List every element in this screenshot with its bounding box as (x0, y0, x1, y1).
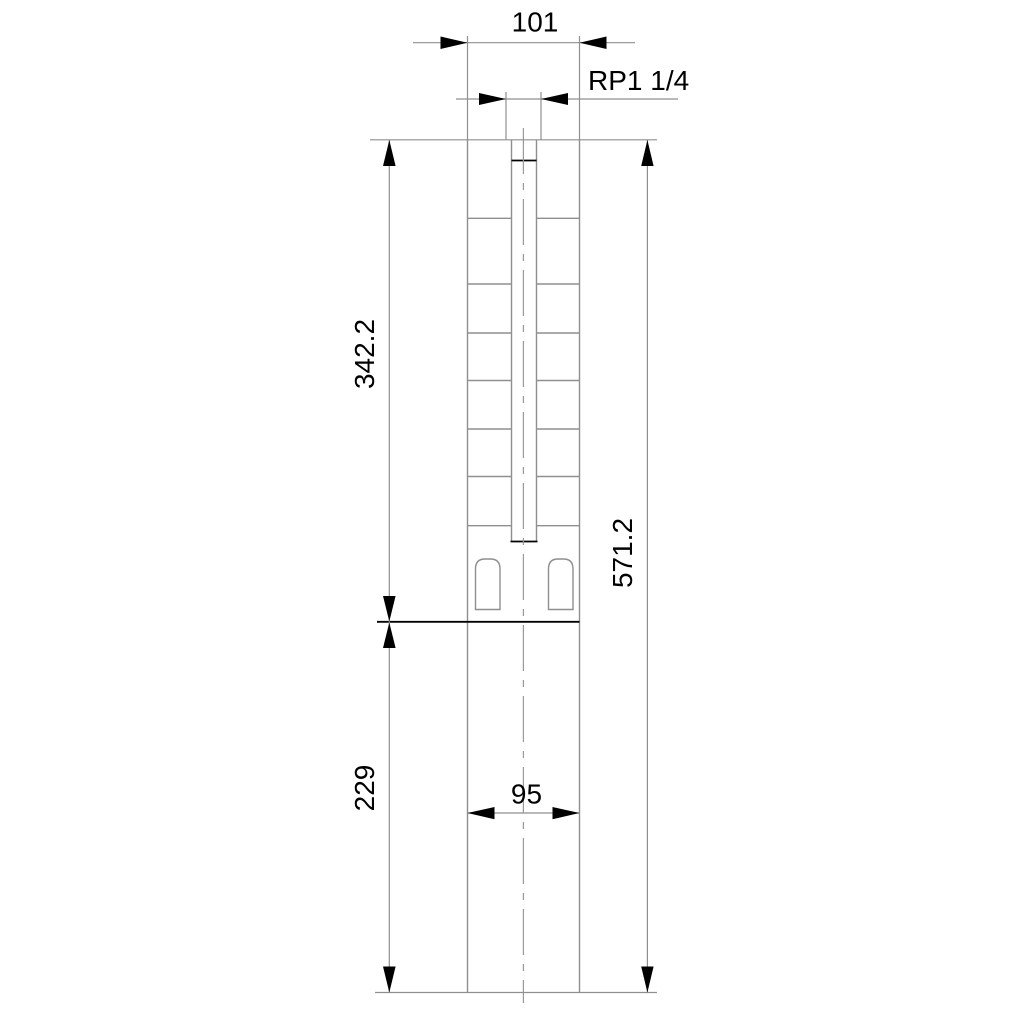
arrow-229-top (383, 623, 396, 649)
suction-slot-left (476, 559, 501, 610)
arrow-95-left (468, 807, 495, 819)
dimension-arrows (383, 37, 654, 993)
arrow-101-right (580, 37, 607, 50)
arrow-thread-right (541, 93, 568, 105)
dim-label-motor-length: 229 (349, 765, 380, 812)
arrow-95-right (553, 807, 580, 819)
drawing-canvas: 101 RP1 1/4 342.2 571.2 229 95 (0, 0, 1024, 1024)
dim-label-thread-size: RP1 1/4 (588, 65, 689, 96)
arrow-342-bottom (383, 596, 396, 622)
dim-label-motor-diameter: 95 (511, 779, 542, 810)
arrow-229-bottom (383, 967, 396, 993)
dim-label-outlet-width: 101 (512, 7, 559, 38)
suction-slot-right (549, 559, 574, 610)
arrow-101-left (441, 37, 468, 50)
dimension-labels: 101 RP1 1/4 342.2 571.2 229 95 (349, 7, 689, 812)
dim-label-pump-length: 342.2 (349, 319, 380, 389)
black-edges (377, 161, 580, 622)
arrow-thread-left (479, 93, 506, 105)
arrow-571-bottom (641, 967, 653, 993)
technical-drawing: 101 RP1 1/4 342.2 571.2 229 95 (0, 0, 1024, 1024)
arrow-571-top (641, 140, 653, 166)
arrow-342-top (383, 140, 396, 166)
dim-label-total-length: 571.2 (607, 518, 638, 588)
